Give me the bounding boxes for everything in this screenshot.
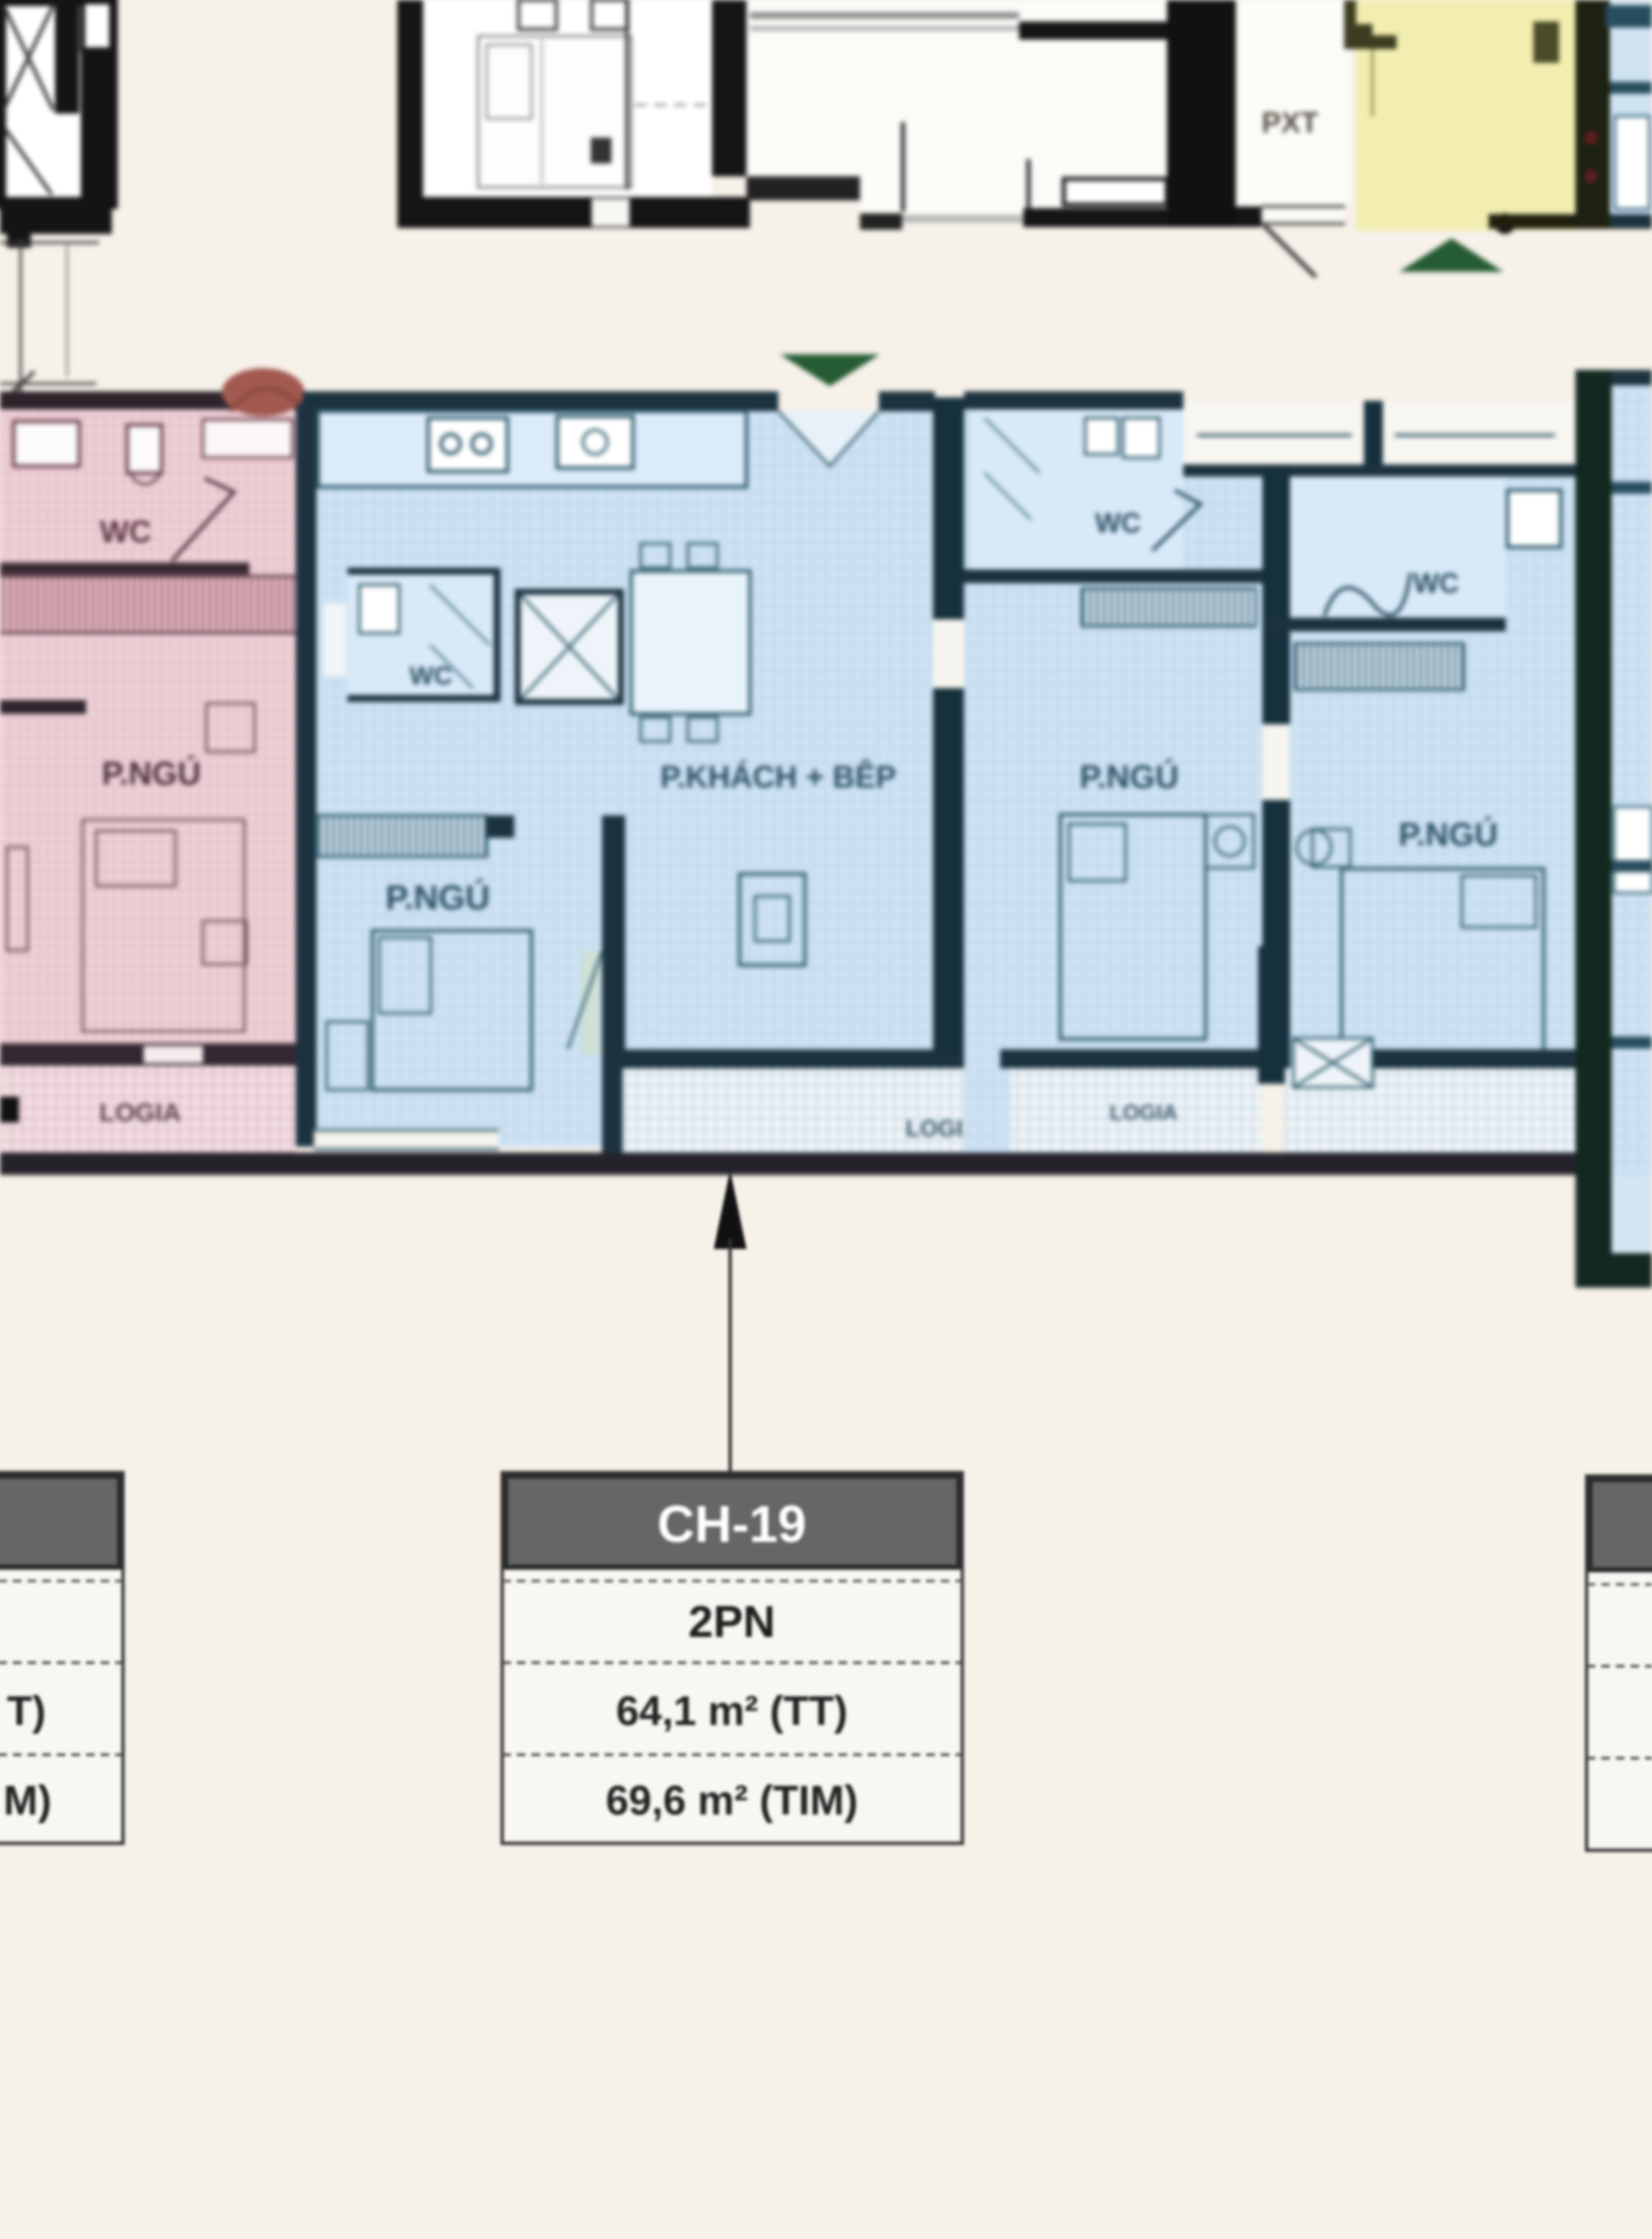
- svg-text:69,6 m² (TIM): 69,6 m² (TIM): [605, 1779, 857, 1824]
- svg-text:WC: WC: [1095, 507, 1140, 538]
- svg-text:LOGIA: LOGIA: [100, 1099, 181, 1128]
- svg-text:P.NGÚ: P.NGÚ: [101, 754, 200, 792]
- svg-text:P.KHÁCH + BÊP: P.KHÁCH + BÊP: [660, 759, 896, 795]
- svg-text:WC: WC: [100, 514, 151, 550]
- svg-text:WC: WC: [1413, 568, 1459, 599]
- svg-text:P.NGÚ: P.NGÚ: [1398, 815, 1497, 853]
- svg-text:PXT: PXT: [1262, 107, 1318, 139]
- svg-text:LOGIA: LOGIA: [1109, 1101, 1177, 1125]
- svg-text:T): T): [7, 1689, 46, 1735]
- svg-text:64,1 m² (TT): 64,1 m² (TT): [616, 1689, 847, 1735]
- svg-text:CH-19: CH-19: [657, 1496, 806, 1553]
- svg-text:P.NGÚ: P.NGÚ: [385, 877, 490, 917]
- svg-text:P.NGÚ: P.NGÚ: [1079, 758, 1178, 796]
- svg-text:WC: WC: [409, 662, 452, 691]
- svg-text:M): M): [3, 1779, 52, 1824]
- svg-text:2PN: 2PN: [688, 1597, 775, 1647]
